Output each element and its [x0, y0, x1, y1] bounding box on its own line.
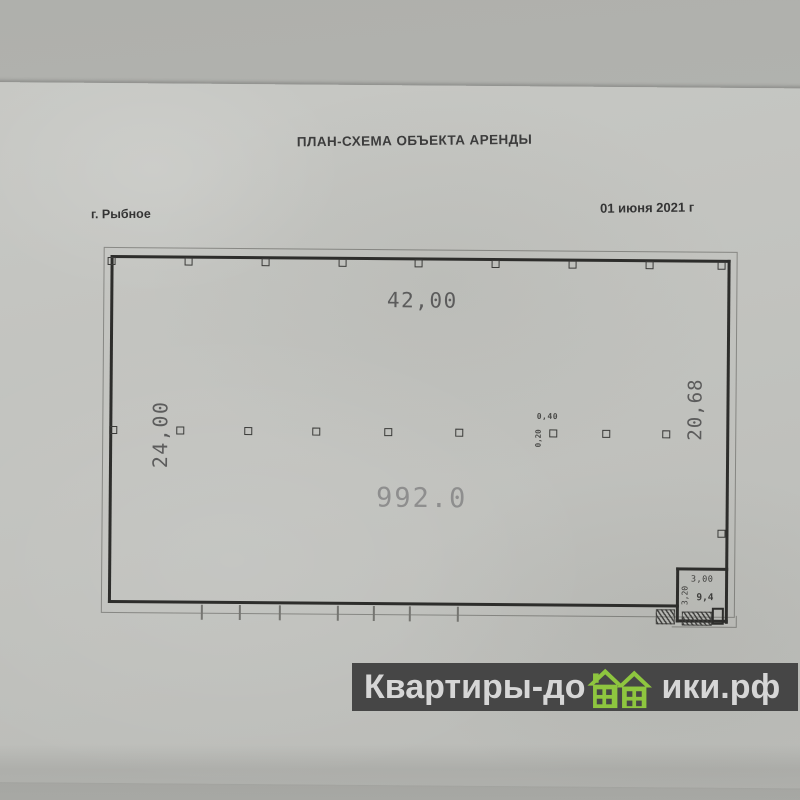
area-label: 992.0 [376, 483, 468, 515]
annex-width-label: 3,00 [691, 575, 714, 585]
dimension-tick [279, 605, 281, 620]
photo-bottom-shadow [0, 744, 800, 800]
dimension-top-label: 42,00 [387, 288, 458, 313]
watermark-text-right: ики.рф [661, 670, 780, 704]
column-mark [108, 257, 116, 265]
watermark-text-left: Квартиры-до [364, 670, 585, 704]
column-mark [662, 430, 670, 438]
dimension-tick [337, 606, 339, 621]
column-mark [549, 429, 557, 437]
dimension-tick [409, 606, 411, 621]
column-mark [717, 530, 725, 538]
dimension-tick [201, 605, 203, 620]
annex-depth-label: 3,20 [680, 586, 689, 605]
column-mark [262, 258, 270, 266]
column-mark [718, 262, 726, 270]
dimension-tick [457, 607, 459, 622]
annex-wall-top [676, 567, 728, 570]
dimension-tick [239, 605, 241, 620]
column-mark [646, 261, 654, 269]
dimension-tick [373, 606, 375, 621]
houses-icon [586, 665, 660, 709]
column-mark [569, 261, 577, 269]
column-mark [455, 429, 463, 437]
dimension-right-label: 20,68 [684, 378, 706, 440]
door-hatch-symbol [656, 609, 675, 624]
column-depth-label: 0,20 [534, 429, 543, 447]
column-mark [602, 430, 610, 438]
column-mark [415, 259, 423, 267]
column-mark [384, 428, 392, 436]
column-mark [339, 259, 347, 267]
column-mark [244, 427, 252, 435]
watermark-bar: Квартиры-до ики.рф [352, 663, 798, 711]
column-mark [312, 428, 320, 436]
column-mark [176, 426, 184, 434]
column-mark [185, 258, 193, 266]
annex-wall-left [676, 567, 679, 622]
dimension-left-label: 24,00 [148, 400, 173, 468]
annex-area-label: 9,4 [696, 592, 713, 603]
door-jamb-symbol [712, 608, 724, 625]
column-width-label: 0,40 [537, 412, 558, 421]
column-mark [492, 260, 500, 268]
door-hatch-symbol [682, 611, 712, 625]
scanned-document-photo: ПЛАН-СХЕМА ОБЪЕКТА АРЕНДЫ г. Рыбное 01 и… [0, 0, 800, 800]
column-mark [109, 426, 117, 434]
